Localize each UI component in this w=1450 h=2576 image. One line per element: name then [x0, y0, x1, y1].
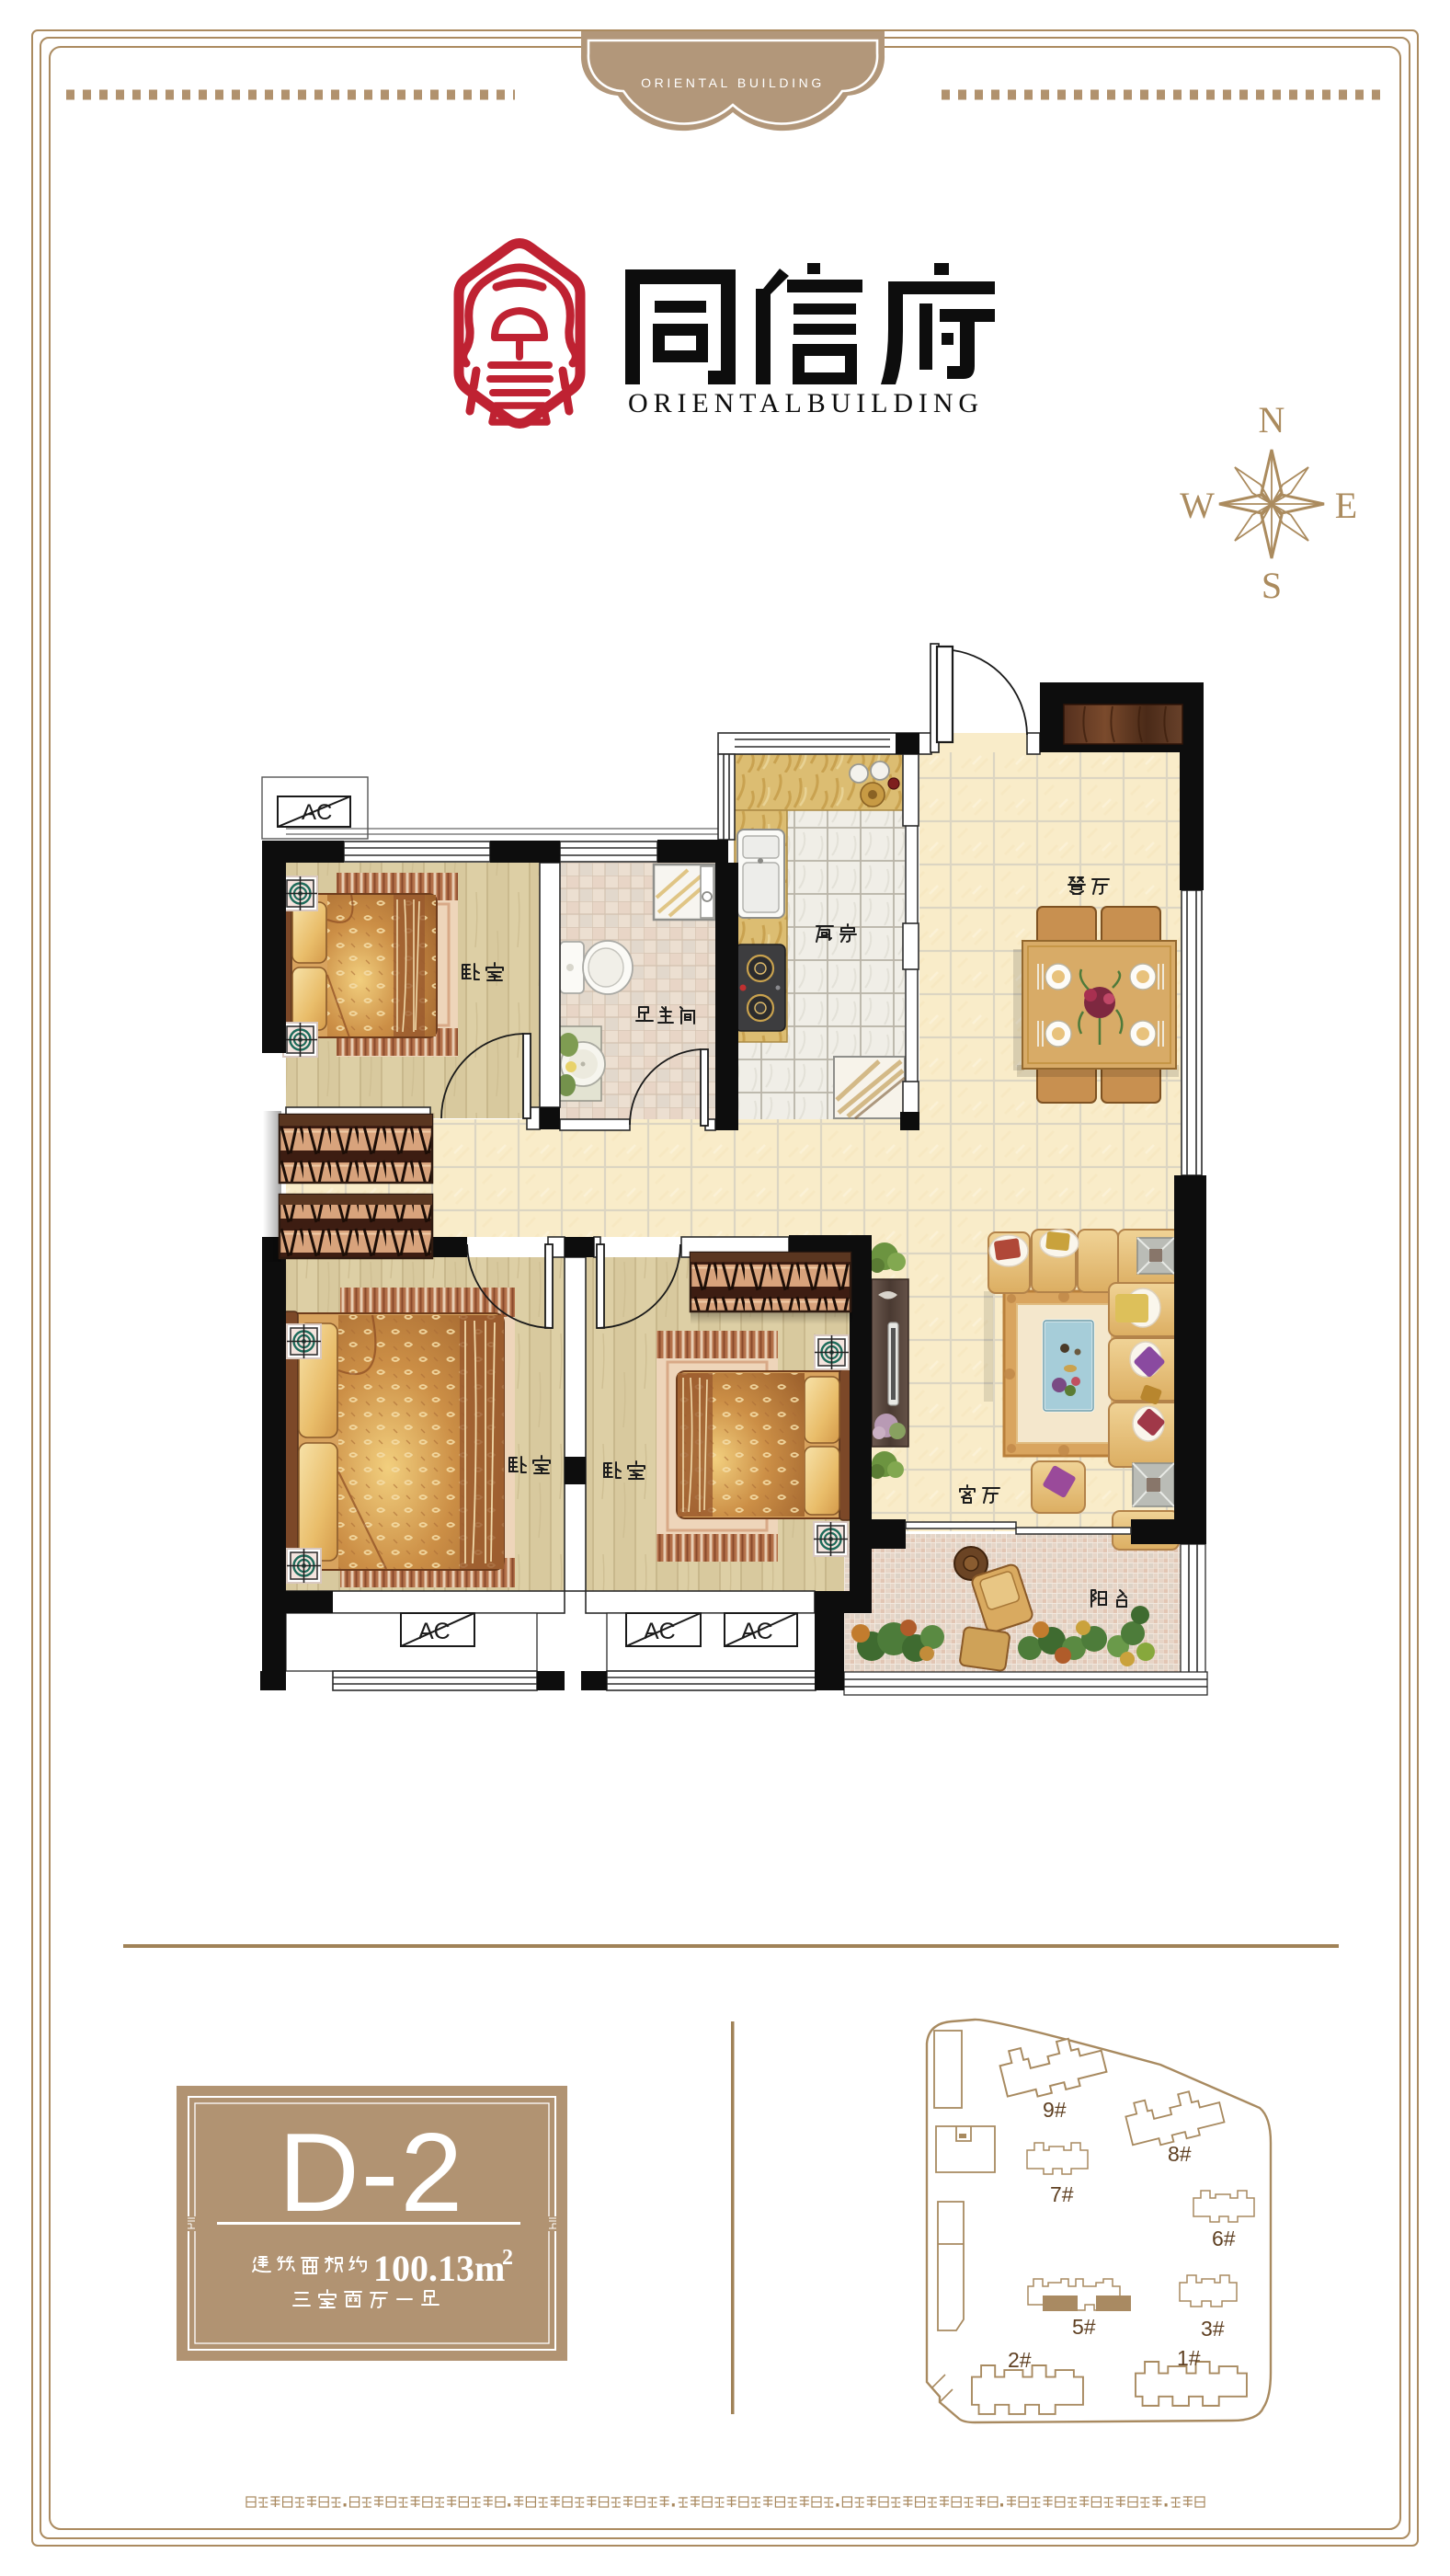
- svg-text:AC: AC: [302, 800, 332, 825]
- svg-text:AC: AC: [644, 1619, 676, 1644]
- svg-text:N: N: [1259, 399, 1285, 441]
- svg-text:6#: 6#: [1212, 2227, 1236, 2250]
- svg-text:3#: 3#: [1201, 2317, 1225, 2341]
- svg-text:ORIENTAL BUILDING: ORIENTAL BUILDING: [641, 75, 825, 90]
- svg-text:ORIENTALBUILDING: ORIENTALBUILDING: [628, 388, 984, 418]
- svg-text:S: S: [1262, 565, 1282, 606]
- svg-text:AC: AC: [418, 1619, 451, 1644]
- svg-text:E: E: [1335, 485, 1357, 526]
- svg-text:5#: 5#: [1072, 2315, 1096, 2339]
- svg-text:W: W: [1180, 485, 1215, 526]
- svg-text:D-2: D-2: [279, 2110, 465, 2235]
- svg-text:AC: AC: [741, 1619, 773, 1644]
- svg-text:100.13m: 100.13m: [373, 2248, 505, 2289]
- svg-text:9#: 9#: [1043, 2098, 1067, 2122]
- svg-text:7#: 7#: [1050, 2182, 1074, 2206]
- svg-text:2#: 2#: [1008, 2348, 1032, 2372]
- svg-text:8#: 8#: [1168, 2142, 1192, 2166]
- svg-text:1#: 1#: [1177, 2346, 1201, 2370]
- svg-text:2: 2: [502, 2246, 513, 2270]
